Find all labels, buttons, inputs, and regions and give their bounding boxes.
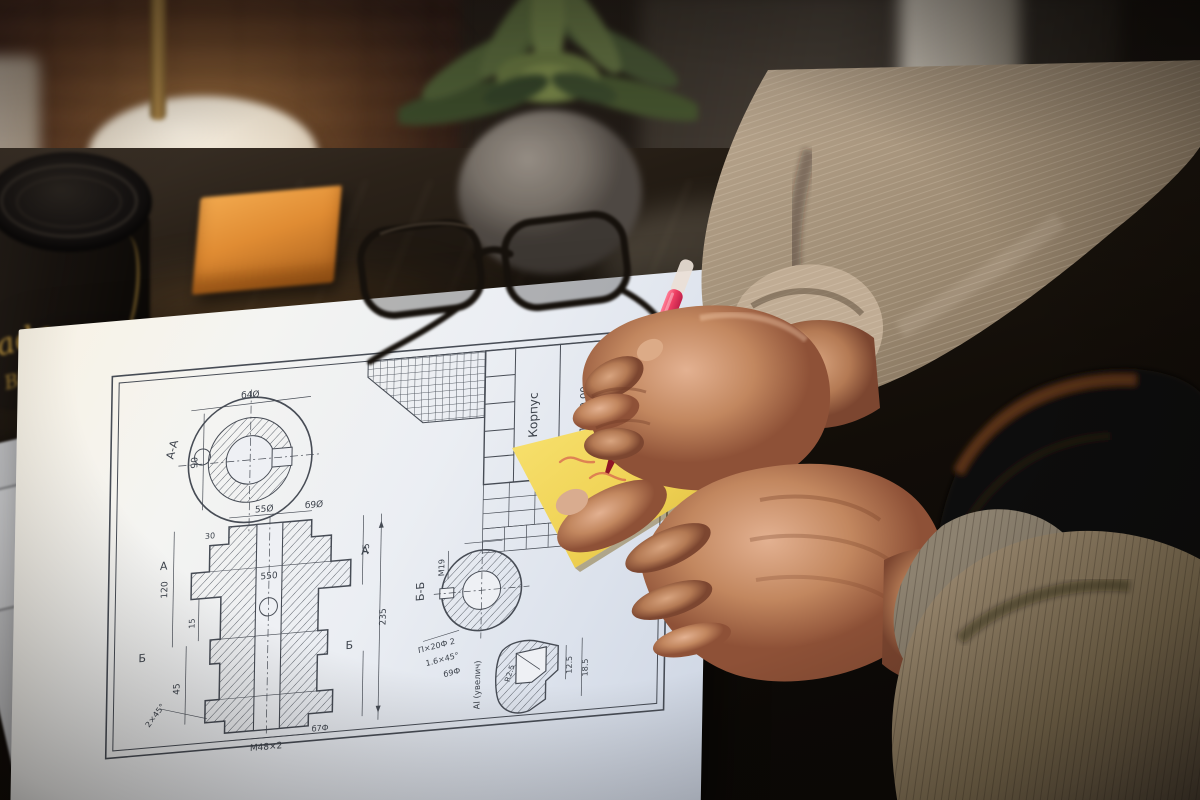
sweater-sleeve-lower [892,509,1200,800]
person [0,0,1200,800]
photo-scene: ada Blend [0,0,1200,800]
